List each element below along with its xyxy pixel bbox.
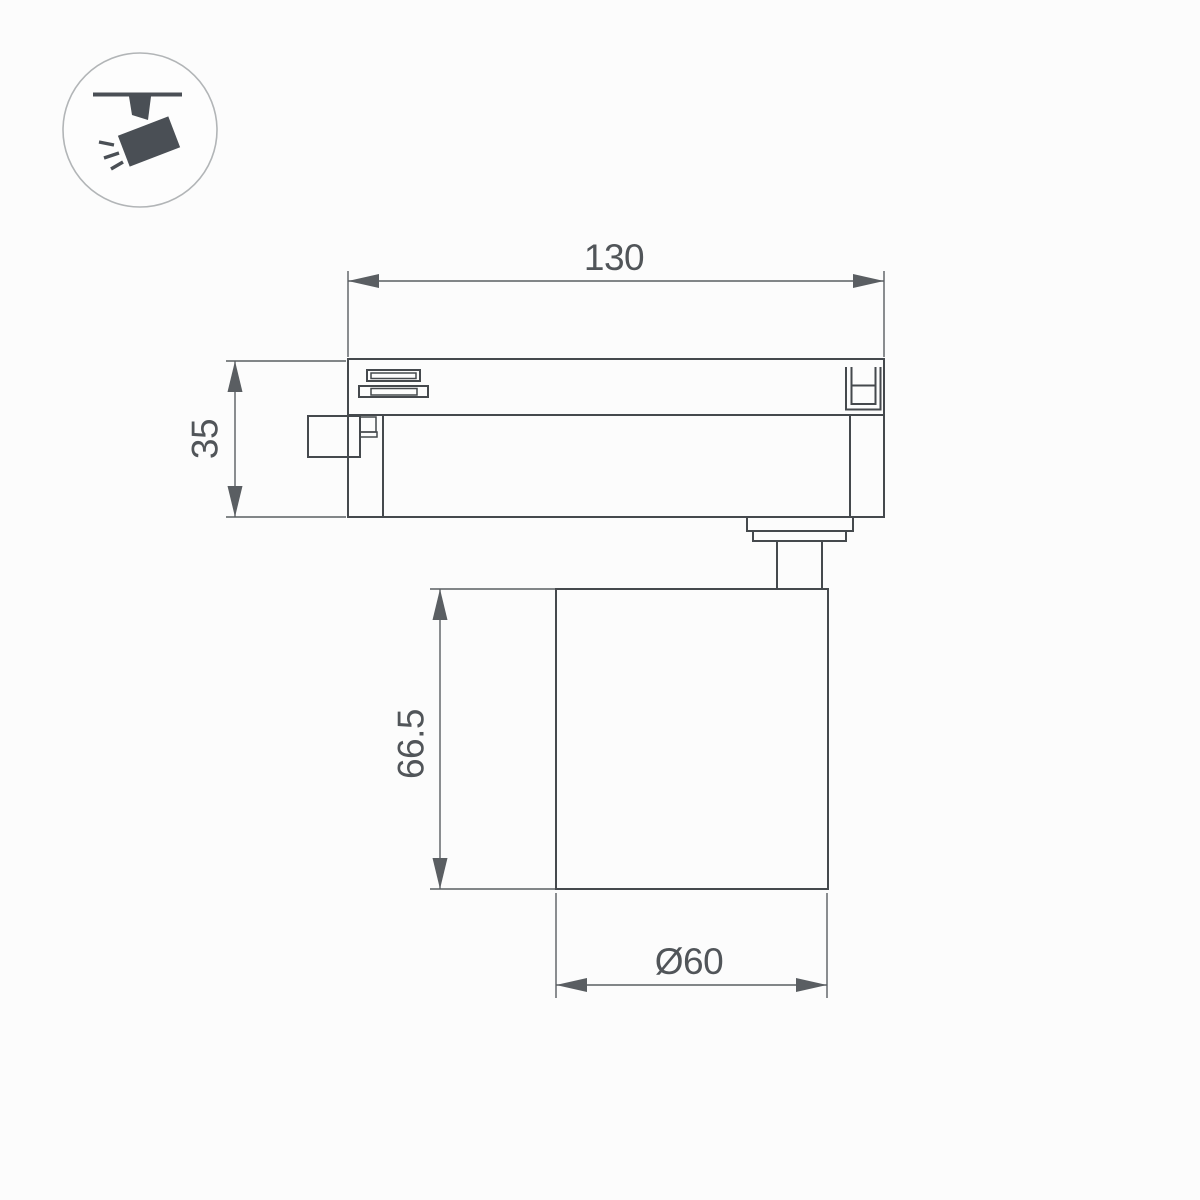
dim-label-lamp-body-height: 66.5 xyxy=(391,709,432,779)
technical-drawing-canvas: 130 35 66.5 Ø60 xyxy=(0,0,1200,1200)
dimension-track-adapter-height: 35 xyxy=(185,361,347,517)
dim-arrow-right xyxy=(796,978,827,992)
dim-arrow-top xyxy=(228,361,243,392)
dim-label-track-adapter-height: 35 xyxy=(185,419,226,459)
extension-lines xyxy=(226,361,346,517)
gear-housing xyxy=(348,415,884,517)
dimension-lamp-body-diameter: Ø60 xyxy=(556,893,827,998)
adapter-contact-bracket xyxy=(846,367,881,410)
housing-tab-lip xyxy=(360,432,377,437)
dim-arrow-left xyxy=(348,274,379,288)
gear-housing-inner-edges xyxy=(383,415,850,517)
luminaire-outline xyxy=(308,359,884,889)
extension-lines xyxy=(430,589,555,889)
dim-arrow-left xyxy=(556,978,587,992)
adapter-clip-lower-inner xyxy=(371,389,417,396)
dim-arrow-bottom xyxy=(228,486,243,517)
stem-plate-upper xyxy=(747,517,853,531)
dimension-track-adapter-width: 130 xyxy=(348,237,884,357)
dim-arrow-top xyxy=(433,589,448,620)
icon-track-bar xyxy=(93,93,182,97)
dim-arrow-bottom xyxy=(433,858,448,889)
dimension-lamp-body-height: 66.5 xyxy=(391,589,556,889)
lamp-cylinder xyxy=(556,589,828,889)
swivel-stem xyxy=(777,541,822,589)
dim-arrow-right xyxy=(853,274,884,288)
adapter-switch-knob xyxy=(308,416,360,457)
dimension-drawing-page: 130 35 66.5 Ø60 xyxy=(0,0,1200,1200)
dim-label-track-adapter-width: 130 xyxy=(584,237,644,278)
dim-label-lamp-body-diameter: Ø60 xyxy=(655,941,723,982)
housing-tab xyxy=(360,417,376,432)
adapter-clip-upper-inner xyxy=(371,373,416,379)
track-spotlight-icon xyxy=(63,53,217,207)
stem-plate-lower xyxy=(753,531,846,541)
adapter-clip-upper xyxy=(367,370,420,381)
extension-lines xyxy=(348,271,884,357)
